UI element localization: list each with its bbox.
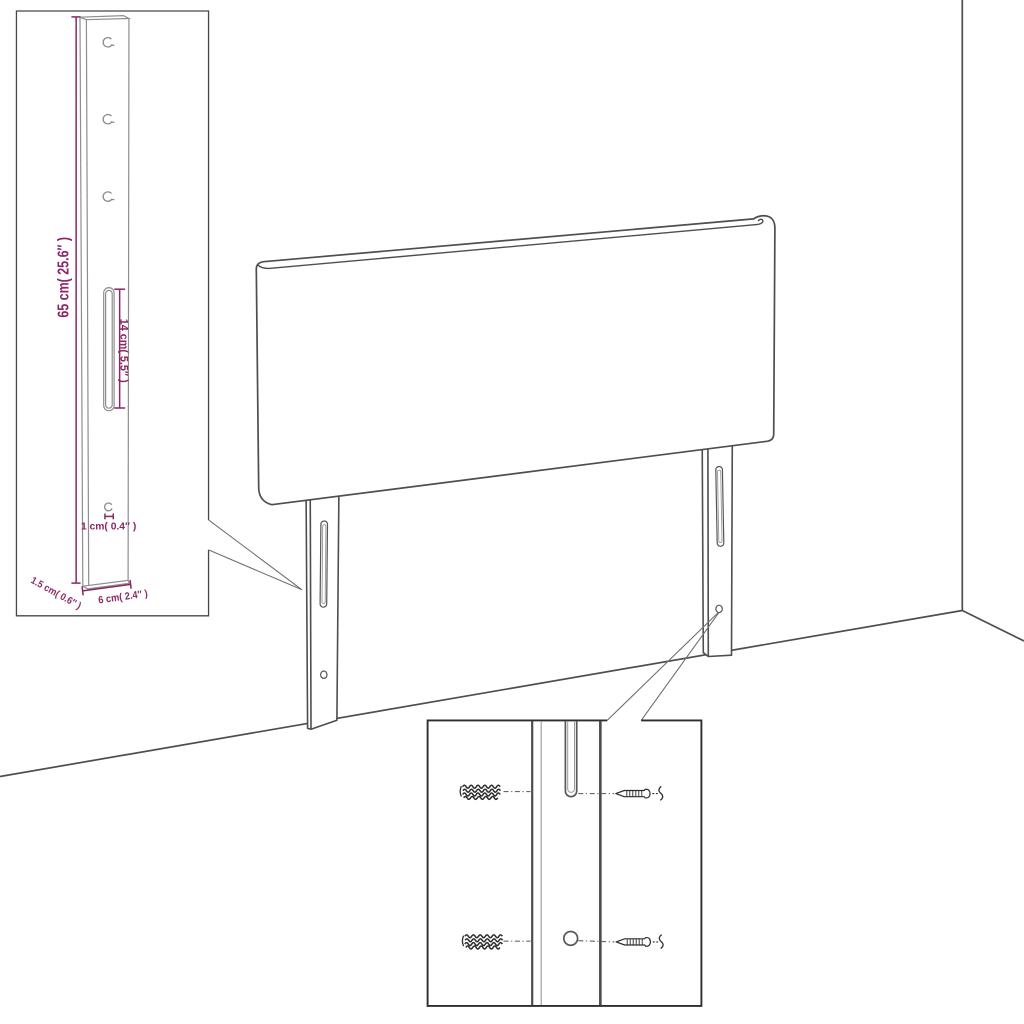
svg-text:14 cm( 5.5″ ): 14 cm( 5.5″ ) [117, 319, 129, 383]
svg-text:65 cm( 25.6″ ): 65 cm( 25.6″ ) [54, 237, 72, 318]
svg-text:1 cm( 0.4″ ): 1 cm( 0.4″ ) [81, 522, 136, 533]
